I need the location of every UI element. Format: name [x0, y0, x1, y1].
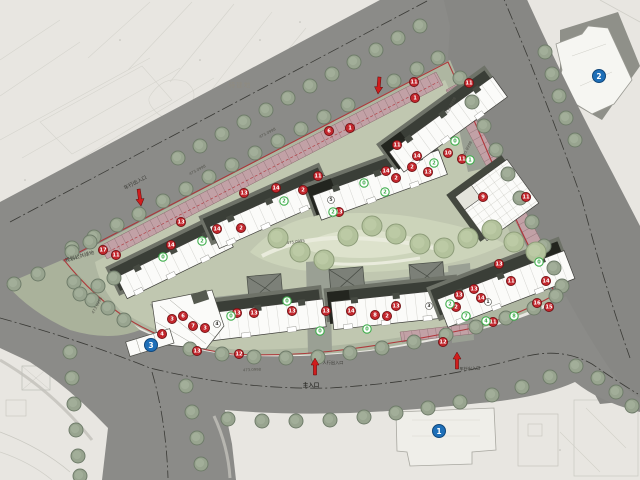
svg-text:0: 0	[285, 298, 289, 304]
red-marker: 8	[370, 310, 379, 319]
green-marker: 0	[535, 258, 543, 266]
svg-text:15: 15	[545, 304, 553, 310]
red-marker: 13	[321, 306, 330, 315]
green-marker: 0	[283, 297, 291, 305]
svg-text:0: 0	[229, 313, 233, 319]
red-marker: 7	[188, 321, 197, 330]
svg-text:11: 11	[393, 142, 401, 148]
svg-text:13: 13	[177, 219, 185, 225]
svg-text:4: 4	[484, 318, 488, 324]
svg-text:0: 0	[161, 254, 165, 260]
svg-text:17: 17	[99, 247, 107, 253]
svg-text:13: 13	[193, 348, 201, 354]
green-marker: 2	[446, 300, 454, 308]
red-marker: 14	[212, 224, 221, 233]
green-marker: 2	[329, 208, 337, 216]
svg-text:11: 11	[410, 79, 418, 85]
unit-marker: 1	[485, 299, 492, 306]
unit-marker: 3	[426, 303, 433, 310]
svg-text:2: 2	[301, 187, 305, 193]
svg-text:13: 13	[495, 261, 503, 267]
label-pending-land: 待建地	[229, 80, 252, 89]
green-marker: 0	[360, 179, 368, 187]
red-marker: 14	[346, 306, 355, 315]
svg-text:14: 14	[542, 278, 550, 284]
svg-text:4: 4	[160, 331, 164, 337]
red-marker: 13	[192, 346, 201, 355]
green-marker: 0	[363, 325, 371, 333]
red-marker: 2	[391, 173, 400, 182]
label-pedestrian-entrance: 人行出入口	[323, 359, 344, 366]
red-marker: 11	[111, 250, 120, 259]
red-marker: 3	[200, 323, 209, 332]
green-marker: 0	[316, 327, 324, 335]
red-marker: 14	[476, 293, 485, 302]
green-marker: 1	[466, 156, 474, 164]
red-marker: 11	[313, 171, 322, 180]
red-marker: 4	[157, 329, 166, 338]
svg-text:14: 14	[213, 226, 221, 232]
svg-text:6: 6	[181, 313, 185, 319]
green-marker: 2	[198, 237, 206, 245]
svg-text:0: 0	[365, 326, 369, 332]
svg-text:13: 13	[470, 286, 478, 292]
svg-text:2: 2	[331, 209, 335, 215]
red-marker: 14	[381, 166, 390, 175]
svg-text:5: 5	[329, 197, 332, 203]
site-plan-drawing: 待建地 车行出入口 规划公共绿地 人行出入口 主入口 车行出入口 473.099…	[0, 0, 640, 480]
svg-text:10: 10	[444, 150, 452, 156]
red-marker: 13	[391, 301, 400, 310]
svg-text:11: 11	[507, 278, 515, 284]
svg-text:12: 12	[439, 339, 447, 345]
svg-text:11: 11	[112, 252, 120, 258]
red-marker: 1	[410, 93, 419, 102]
svg-text:1: 1	[468, 157, 472, 163]
svg-text:1: 1	[486, 299, 489, 305]
green-marker: 7	[462, 312, 470, 320]
red-marker: 6	[178, 311, 187, 320]
red-marker: 11	[464, 78, 473, 87]
svg-text:14: 14	[382, 168, 390, 174]
red-marker: 3	[167, 314, 176, 323]
svg-text:2: 2	[385, 313, 389, 319]
svg-text:13: 13	[455, 292, 463, 298]
svg-text:14: 14	[272, 185, 280, 191]
green-marker: 2	[280, 197, 288, 205]
red-marker: 17	[98, 245, 107, 254]
svg-text:11: 11	[465, 80, 473, 86]
green-marker: 4	[482, 317, 490, 325]
green-marker: 0	[227, 312, 235, 320]
svg-text:11: 11	[522, 194, 530, 200]
red-marker: 12	[438, 337, 447, 346]
green-marker: 0	[451, 137, 459, 145]
svg-text:2: 2	[200, 238, 204, 244]
red-marker: 13	[287, 306, 296, 315]
svg-text:2: 2	[432, 160, 436, 166]
red-marker: 11	[392, 140, 401, 149]
green-marker: 2	[430, 159, 438, 167]
red-marker: 9	[478, 192, 487, 201]
red-marker: 13	[469, 284, 478, 293]
red-marker: 11	[521, 192, 530, 201]
svg-text:3: 3	[427, 303, 430, 309]
red-marker: 14	[412, 151, 421, 160]
svg-text:16: 16	[533, 300, 541, 306]
site-plan-page: 待建地 车行出入口 规划公共绿地 人行出入口 主入口 车行出入口 473.099…	[0, 0, 640, 480]
svg-text:13: 13	[250, 310, 258, 316]
red-marker: 14	[166, 240, 175, 249]
svg-text:9: 9	[481, 194, 485, 200]
red-marker: 13	[249, 308, 258, 317]
red-marker: 13	[239, 188, 248, 197]
svg-text:0: 0	[362, 180, 366, 186]
red-marker: 10	[443, 148, 452, 157]
svg-text:2: 2	[454, 304, 458, 310]
svg-text:3: 3	[170, 316, 174, 322]
red-marker: 6	[324, 126, 333, 135]
green-marker: 8	[510, 312, 518, 320]
svg-text:7: 7	[464, 313, 468, 319]
red-marker: 14	[541, 276, 550, 285]
svg-text:1: 1	[348, 125, 352, 131]
svg-text:14: 14	[477, 295, 485, 301]
red-marker: 11	[457, 154, 466, 163]
svg-text:2: 2	[383, 189, 387, 195]
red-marker: 2	[407, 162, 416, 171]
svg-text:2: 2	[282, 198, 286, 204]
svg-text:13: 13	[392, 303, 400, 309]
svg-text:3: 3	[203, 325, 207, 331]
red-marker: 14	[271, 183, 280, 192]
svg-text:2: 2	[596, 72, 601, 81]
unit-marker: 4	[214, 321, 221, 328]
red-marker: 2	[236, 223, 245, 232]
svg-text:2: 2	[448, 301, 452, 307]
svg-text:13: 13	[424, 169, 432, 175]
green-marker: 0	[159, 253, 167, 261]
spot-elevation-label: 473.0998	[243, 367, 262, 373]
svg-text:14: 14	[167, 242, 175, 248]
red-marker: 13	[423, 167, 432, 176]
svg-text:0: 0	[318, 328, 322, 334]
svg-text:1: 1	[413, 95, 417, 101]
svg-text:2: 2	[239, 225, 243, 231]
red-marker: 13	[454, 290, 463, 299]
svg-text:7: 7	[191, 323, 195, 329]
label-main-entrance: 主入口	[303, 381, 320, 389]
svg-text:13: 13	[240, 190, 248, 196]
svg-text:0: 0	[537, 259, 541, 265]
green-marker: 2	[381, 188, 389, 196]
svg-text:1: 1	[436, 427, 441, 436]
red-marker: 2	[382, 311, 391, 320]
svg-text:2: 2	[410, 164, 414, 170]
red-marker: 11	[506, 276, 515, 285]
red-marker: 2	[298, 185, 307, 194]
red-marker: 15	[544, 302, 553, 311]
red-marker: 16	[532, 298, 541, 307]
unit-marker: 5	[328, 197, 335, 204]
red-marker: 13	[176, 217, 185, 226]
svg-text:13: 13	[288, 308, 296, 314]
svg-text:11: 11	[458, 156, 466, 162]
svg-text:13: 13	[322, 308, 330, 314]
svg-text:14: 14	[413, 153, 421, 159]
red-marker: 11	[409, 77, 418, 86]
svg-text:14: 14	[347, 308, 355, 314]
red-marker: 13	[494, 259, 503, 268]
red-marker: 1	[345, 123, 354, 132]
svg-text:4: 4	[215, 321, 218, 327]
blue-marker: 1	[433, 425, 446, 438]
svg-text:3: 3	[148, 341, 153, 350]
svg-text:6: 6	[327, 128, 331, 134]
svg-text:2: 2	[394, 175, 398, 181]
red-marker: 12	[234, 349, 243, 358]
blue-marker: 2	[593, 70, 606, 83]
svg-text:8: 8	[512, 313, 516, 319]
svg-text:12: 12	[235, 351, 243, 357]
svg-text:0: 0	[453, 138, 457, 144]
blue-marker: 3	[145, 339, 158, 352]
svg-text:11: 11	[314, 173, 322, 179]
svg-text:8: 8	[373, 312, 377, 318]
